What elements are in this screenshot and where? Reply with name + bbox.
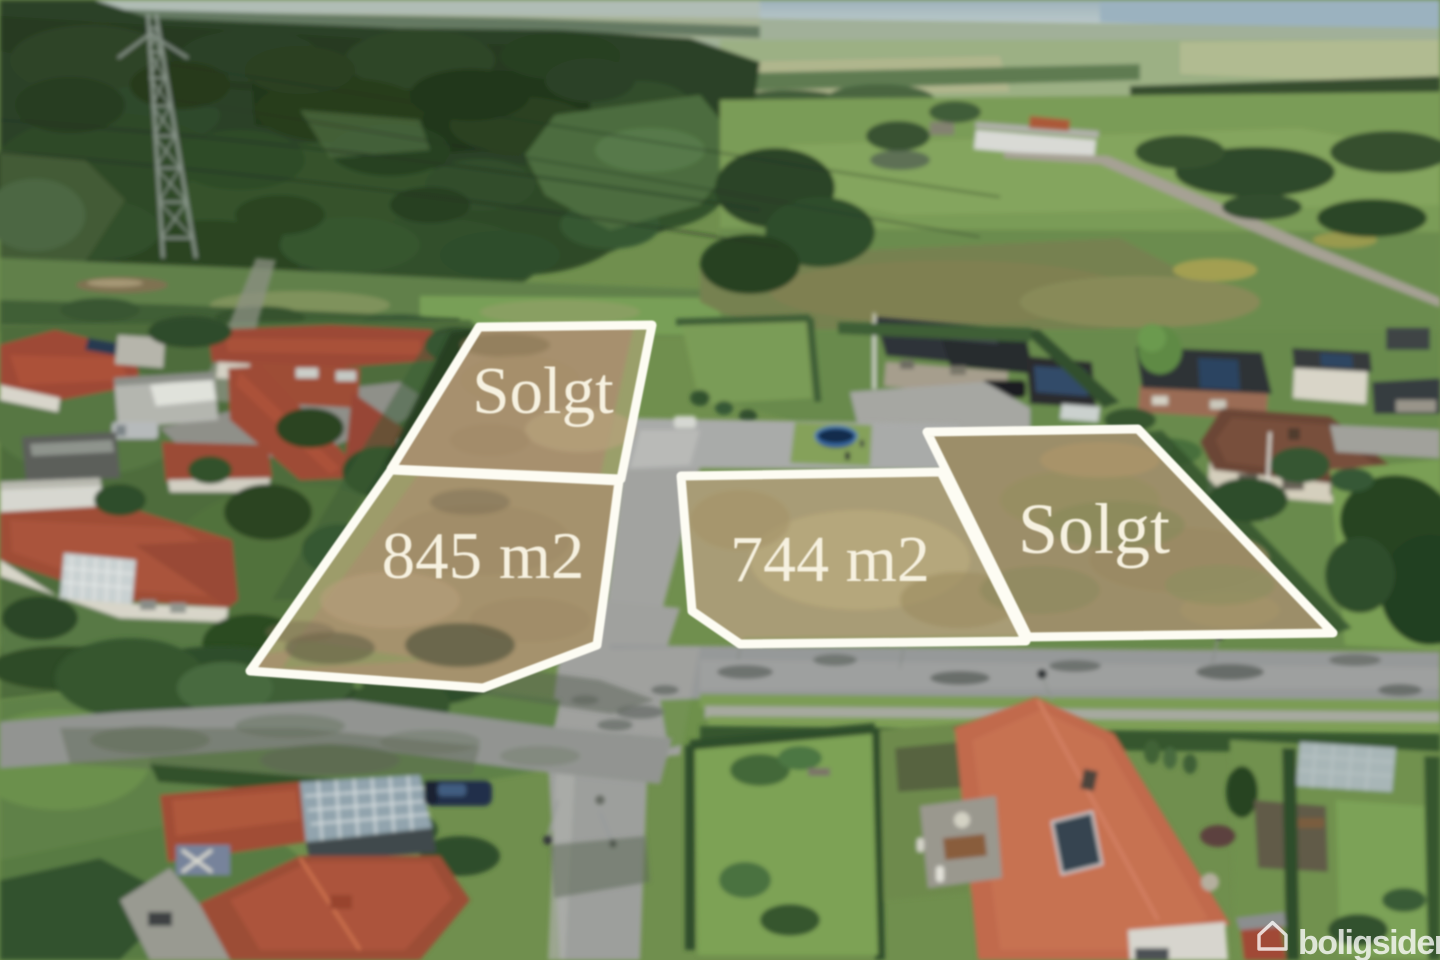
svg-text:Solgt: Solgt [1018, 489, 1170, 569]
svg-text:boligsiden: boligsiden [1298, 924, 1440, 960]
svg-text:845 m2: 845 m2 [382, 519, 585, 593]
svg-text:744 m2: 744 m2 [730, 523, 930, 596]
svg-text:Solgt: Solgt [472, 354, 614, 428]
